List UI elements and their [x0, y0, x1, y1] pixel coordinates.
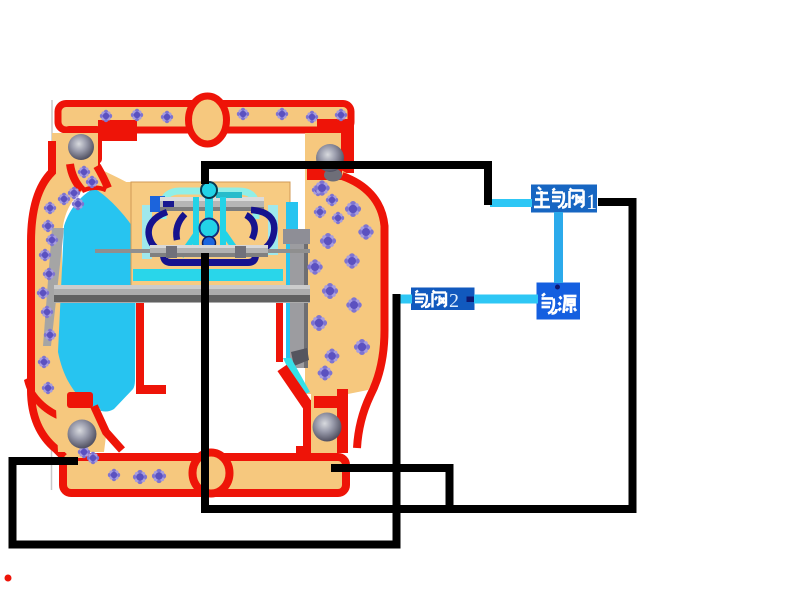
svg-text:2: 2: [449, 290, 459, 312]
svg-text:1: 1: [586, 189, 597, 214]
